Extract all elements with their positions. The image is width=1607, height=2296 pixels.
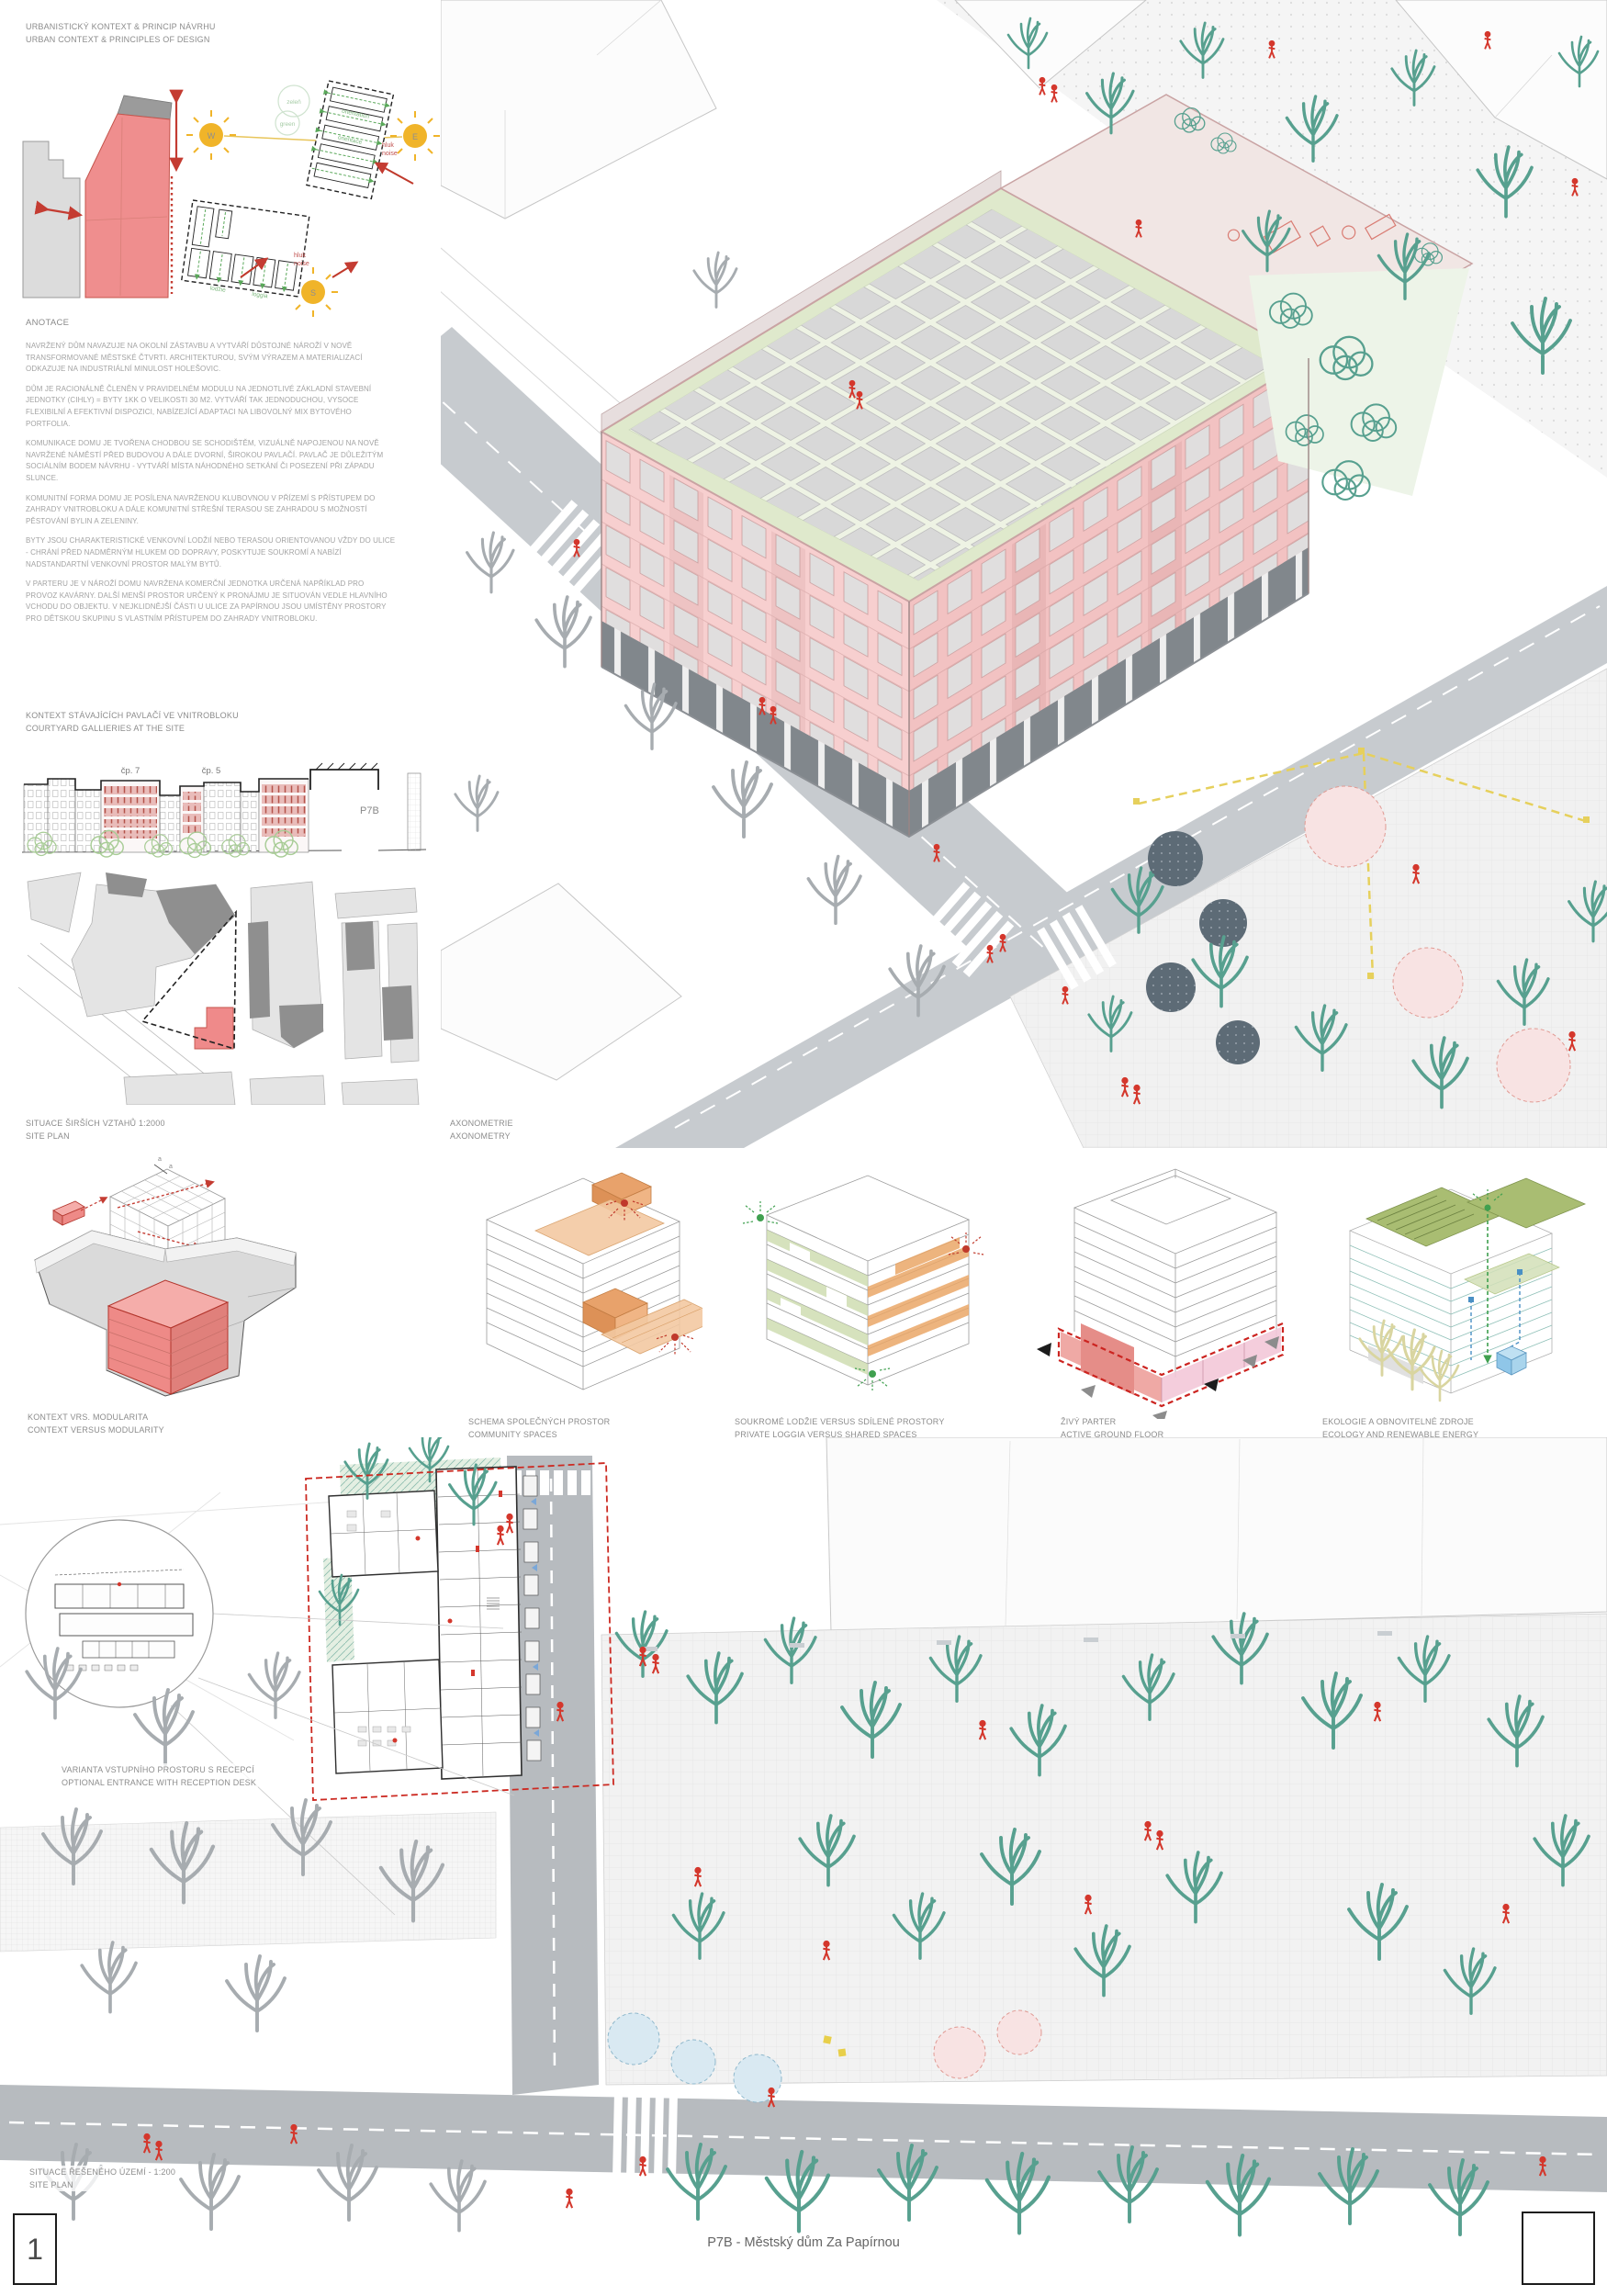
red-brick (53, 1198, 107, 1225)
zelen-label: zeleň (287, 99, 301, 106)
p7b-outline (310, 770, 378, 790)
diagram-parter (1024, 1162, 1318, 1419)
annotation-paragraph: BYTY JSOU CHARAKTERISTICKÉ VENKOVNÍ LODŽ… (26, 535, 397, 570)
green-label: green (280, 121, 296, 128)
competition-board: URBANISTICKÝ KONTEXT & PRINCIP NÁVRHU UR… (0, 0, 1607, 2296)
parter-pink-right (1162, 1327, 1281, 1402)
courtyard-title: KONTEXT STÁVAJÍCÍCH PAVLAČÍ VE VNITROBLO… (26, 709, 239, 735)
axonometry-title-en: AXONOMETRY (450, 1130, 513, 1142)
courtyard-title-en: COURTYARD GALLIERIES AT THE SITE (26, 722, 239, 735)
proposed-building-axon (601, 95, 1472, 837)
axonometry-title-cs: AXONOMETRIE (450, 1117, 513, 1130)
label-cs: SCHEMA SPOLEČNÝCH PROSTOR (468, 1415, 610, 1428)
project-title: P7B - Městský dům Za Papírnou (0, 2235, 1607, 2250)
annotation-paragraph: KOMUNITNÍ FORMA DOMU JE POSÍLENA NAVRŽEN… (26, 493, 397, 528)
sun-south-label: S (310, 288, 316, 298)
svg-text:hluk: hluk (382, 142, 394, 149)
annotation-section: ANOTACE NAVRŽENÝ DŮM NAVAZUJE NA OKOLNÍ … (26, 318, 397, 633)
main-axonometry-drawing (441, 0, 1607, 1148)
siteplan-200-title: SITUACE ŘEŠENÉHO ÚZEMÍ - 1:200 SITE PLAN (28, 2166, 177, 2191)
annotation-paragraph: NAVRŽENÝ DŮM NAVAZUJE NA OKOLNÍ ZÁSTAVBU… (26, 341, 397, 376)
urban-context-title-cs: URBANISTICKÝ KONTEXT & PRINCIP NÁVRHU (26, 20, 216, 33)
urban-context-title: URBANISTICKÝ KONTEXT & PRINCIP NÁVRHU UR… (26, 20, 216, 46)
siteplan-200-title-en: SITE PLAN (29, 2178, 175, 2191)
entrance-variant-title: VARIANTA VSTUPNÍHO PROSTORU S RECEPCÍ OP… (60, 1763, 258, 1789)
siteplan-200-drawing (0, 1437, 1607, 2264)
wireframe (487, 1178, 680, 1390)
annotation-paragraph: DŮM JE RACIONÁLNĚ ČLENĚN V PRAVIDELNÉM M… (26, 384, 397, 430)
diagram-community (455, 1165, 702, 1399)
label-cs: ŽIVÝ PARTER (1061, 1415, 1163, 1428)
lodzie-label: lodžie (209, 286, 226, 294)
svg-text:a: a (169, 1164, 173, 1170)
svg-text:noise: noise (382, 151, 398, 157)
south-rooms-plan (332, 1660, 443, 1773)
green-circles: zeleň green (275, 85, 309, 135)
siteplan-2000-drawing (18, 868, 422, 1105)
svg-text:a: a (158, 1156, 162, 1163)
sun-east: E (390, 111, 440, 161)
siteplan-2000-title-cs: SITUACE ŠIRŠÍCH VZTAHŮ 1:2000 (26, 1117, 165, 1130)
annotation-heading: ANOTACE (26, 318, 397, 328)
stamp-box-empty (1522, 2212, 1595, 2285)
annotation-paragraph: KOMUNIKACE DOMU JE TVOŘENA CHODBOU SE SC… (26, 438, 397, 484)
diagram-modularity: aa aaaa bbbb (28, 1150, 303, 1416)
siteplan-2000-title: SITUACE ŠIRŠÍCH VZTAHŮ 1:2000 SITE PLAN (26, 1117, 165, 1142)
sun-east-label: E (412, 132, 418, 141)
cp7-label: čp. 7 (121, 766, 140, 776)
label-cs: EKOLOGIE A OBNOVITELNÉ ZDROJE (1322, 1415, 1478, 1428)
courtyard-elevation: čp. 7 čp. 5 P7B (18, 744, 432, 863)
context-neighbor-building (23, 141, 80, 298)
label-cs: KONTEXT VRS. MODULARITA (28, 1411, 164, 1424)
entrance-title-cs: VARIANTA VSTUPNÍHO PROSTORU S RECEPCÍ (62, 1763, 256, 1776)
diagram-label-modularity: KONTEXT VRS. MODULARITA CONTEXT VERSUS M… (28, 1411, 164, 1436)
diagram-loggia (725, 1165, 1001, 1399)
label-en: CONTEXT VERSUS MODULARITY (28, 1424, 164, 1436)
sun-ray-line-w (224, 136, 317, 141)
annotation-paragraph: V PARTERU JE V NÁROŽÍ DOMU NAVRŽENA KOME… (26, 579, 397, 625)
svg-text:noise: noise (294, 261, 309, 267)
lower-building-block: lodžie loggia (181, 200, 309, 304)
sun-west-label: W (208, 131, 216, 141)
courtyard-title-cs: KONTEXT STÁVAJÍCÍCH PAVLAČÍ VE VNITROBLO… (26, 709, 239, 722)
cp5-label: čp. 5 (202, 766, 221, 776)
diagram-ecology (1313, 1162, 1589, 1414)
north-rooms-plan (329, 1491, 438, 1577)
siteplan-2000-title-en: SITE PLAN (26, 1130, 165, 1142)
urban-context-title-en: URBAN CONTEXT & PRINCIPLES OF DESIGN (26, 33, 216, 46)
neighbor-block (826, 1437, 1607, 1632)
upper-building-block: orientation orientace (307, 81, 394, 198)
loggia-label: loggia (252, 291, 269, 299)
sun-noise-diagram: zeleň green W E S orientation orientace (138, 46, 455, 335)
siteplan-200-title-cs: SITUACE ŘEŠENÉHO ÚZEMÍ - 1:200 (29, 2166, 175, 2178)
sun-west: W (186, 110, 236, 160)
p7b-label: P7B (360, 805, 379, 816)
axonometry-title: AXONOMETRIE AXONOMETRY (450, 1117, 513, 1142)
label-cs: SOUKROMÉ LODŽIE VERSUS SDÍLENÉ PROSTORY (735, 1415, 945, 1428)
svg-text:hluk: hluk (294, 253, 306, 259)
entrance-title-en: OPTIONAL ENTRANCE WITH RECEPTION DESK (62, 1776, 256, 1789)
community-roof-club (535, 1173, 664, 1255)
